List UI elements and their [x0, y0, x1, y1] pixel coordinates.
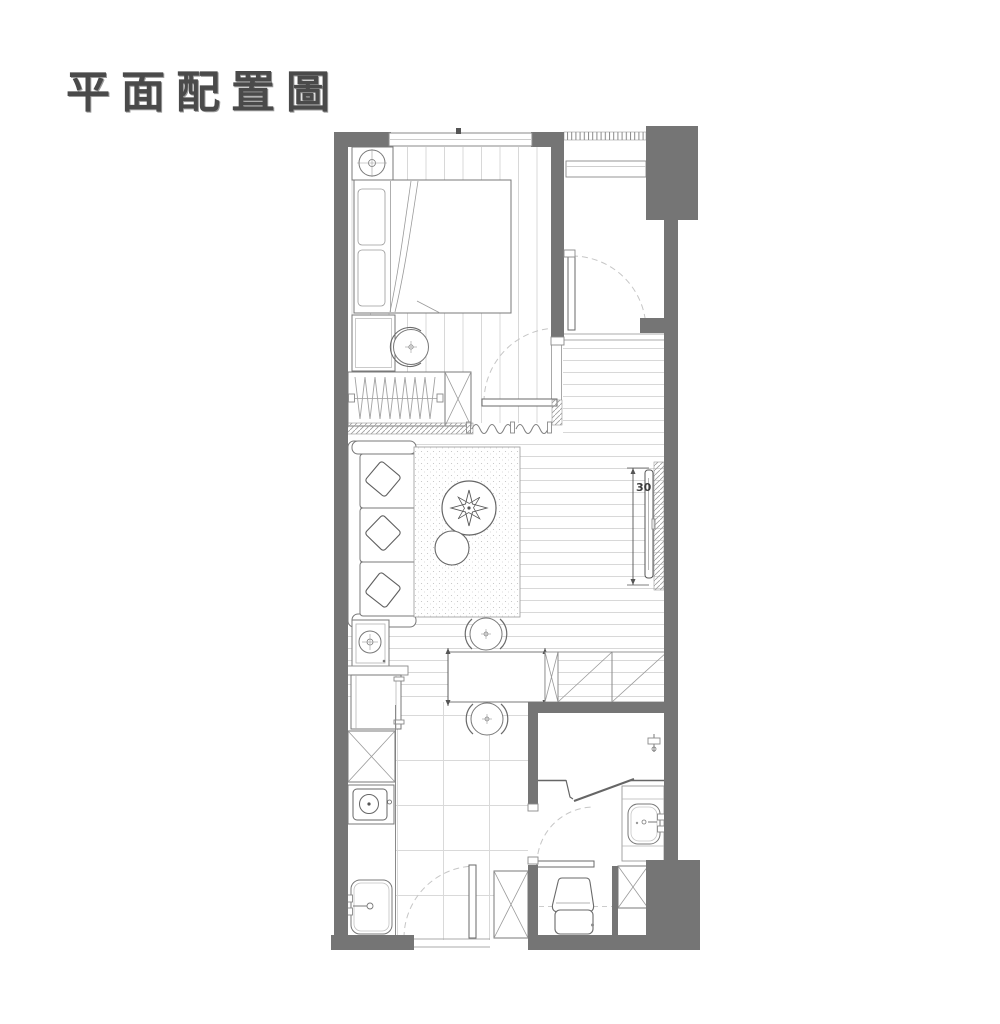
bedroom-door-leaf [482, 399, 557, 406]
stove-cooktop-icon [348, 785, 394, 824]
divider-hatch-wall [552, 400, 562, 425]
toilet-icon [552, 878, 594, 934]
vanity-sink [622, 786, 665, 861]
wall-top-left [334, 132, 391, 147]
bathroom-door-leaf [537, 861, 594, 867]
entry-door-arc [572, 256, 646, 330]
entry-shelf [566, 161, 646, 177]
bathroom-zone [530, 734, 665, 934]
tv-feature-wall-hatch [654, 462, 664, 590]
kitchen-door-leaf [469, 865, 476, 938]
coffee-table [442, 481, 496, 535]
wall-shaft-divider [612, 866, 618, 935]
storage-box-x-icon [445, 372, 471, 426]
wall-bedroom-entry [551, 132, 564, 337]
curtain-icon [467, 422, 552, 434]
window-center-mark [456, 128, 461, 134]
entry-door-leaf [568, 256, 575, 330]
wall-bathroom-top [528, 702, 678, 713]
lamp-table [352, 620, 389, 667]
wall-bathroom-left-lower [528, 865, 538, 941]
wall-right [664, 220, 678, 863]
wall-column-top-right [646, 126, 698, 220]
double-bed [354, 180, 511, 313]
door-jamb [528, 804, 538, 811]
shower-head-icon [648, 734, 660, 752]
wall-entry-stub [640, 318, 678, 333]
divider-hatch-wall [344, 423, 473, 434]
wall-left [334, 132, 348, 950]
wall-bottom-bathroom [528, 935, 650, 950]
door-jamb [551, 337, 564, 345]
bathroom-door-arc [537, 807, 594, 864]
door-jamb [528, 857, 538, 864]
door-jamb [564, 250, 575, 257]
wall-bathroom-left-upper [528, 713, 538, 810]
dining-table [446, 648, 548, 706]
nightstand [352, 147, 393, 180]
shaft-x-icon [618, 866, 648, 908]
kitchen-cabinet-x-icon [348, 731, 395, 782]
tall-cabinet-x-icon [494, 871, 528, 938]
wardrobe [348, 372, 445, 426]
wall-column-bottom-right [646, 860, 700, 950]
hallway-wood-floor [563, 343, 664, 435]
floorplan-drawing: 30 [0, 0, 1000, 1024]
round-side-table [435, 531, 469, 565]
nightstand [352, 315, 395, 371]
kitchen-sink-icon [346, 880, 393, 934]
floorplan-page: 平面配置圖 [0, 0, 1000, 1024]
page-title: 平面配置圖 [66, 56, 341, 120]
desk-cabinet [344, 666, 408, 729]
tv-dimension-label: 30 [636, 481, 652, 494]
entry-hatch-strip [564, 132, 646, 140]
wall-bottom-left [331, 935, 414, 950]
